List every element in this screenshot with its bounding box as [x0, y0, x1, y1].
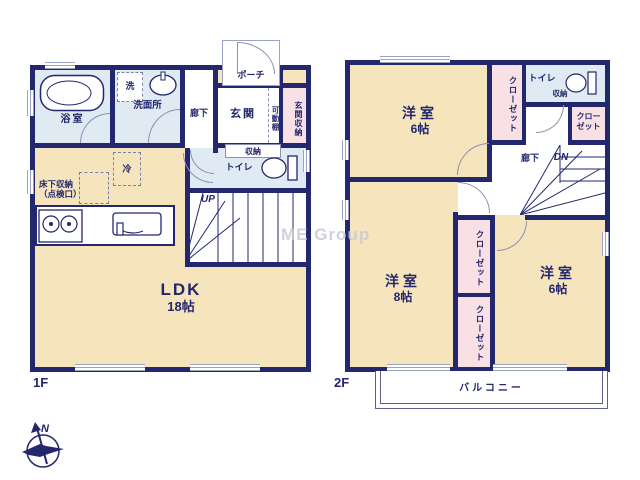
window [303, 150, 310, 172]
window [27, 90, 34, 116]
wall [35, 143, 185, 148]
floorplan-2f: 洋室 6帖 クローゼット トイレ 収納 クローゼット 廊下 DN 洋室 8帖 ク… [345, 60, 610, 372]
wall [453, 215, 495, 220]
washer-label: 洗 [117, 81, 143, 91]
floorplan-1f: 洗 冷 浴室 洗面所 廊下 玄関 可動棚 玄関収納 収納 トイレ UP [30, 65, 311, 372]
entrance-label: 玄関 [218, 108, 268, 121]
entrance-storage-label: 玄関収納 [286, 92, 303, 146]
floor1-name: 1F [33, 375, 48, 390]
sink-icon [107, 209, 169, 243]
closet-mid-label: クローゼット [464, 227, 484, 289]
balcony-label: バルコニー [376, 383, 607, 395]
bedroom-left-size: 8帖 [363, 291, 443, 305]
ldk-size: 18帖 [141, 300, 221, 315]
bedroom-right-size: 6帖 [516, 283, 600, 297]
door-arc [457, 143, 489, 175]
closet-top-label: クローゼット [497, 73, 517, 135]
window [387, 364, 450, 371]
compass-n-letter: N [41, 423, 50, 435]
window [493, 364, 567, 371]
hallway-label: 廊下 [184, 108, 214, 118]
wall [185, 262, 306, 267]
ldk-label: LDK 18帖 [141, 280, 221, 314]
washbasin-icon [147, 70, 179, 98]
underfloor-line2: （点検口） [39, 189, 82, 199]
bedroom-top-name: 洋室 [370, 105, 470, 121]
compass-north-icon: N [14, 418, 72, 476]
watermark: ME Group [281, 225, 370, 245]
bath-label: 浴室 [35, 114, 110, 126]
movable-shelf-label: 可動棚 [268, 94, 279, 144]
stove-icon [38, 209, 83, 243]
underfloor-line1: 床下収納 [39, 179, 73, 189]
window [342, 140, 349, 160]
door-arc [497, 221, 527, 251]
closet-small-label: クローゼット [573, 112, 604, 131]
window [45, 62, 75, 69]
underfloor-label: 床下収納 （点検口） [36, 180, 82, 200]
hallway-2f-label: 廊下 [514, 153, 546, 163]
bedroom-right-name: 洋室 [516, 265, 600, 281]
window [602, 232, 609, 256]
window [75, 364, 145, 371]
floor2-name: 2F [334, 375, 349, 390]
bedroom-right-label: 洋室 6帖 [516, 265, 600, 297]
wall [350, 177, 492, 182]
bedroom-top-label: 洋室 6帖 [370, 105, 470, 137]
window [342, 200, 349, 220]
storage-2f-label: 収納 [546, 90, 574, 99]
bathtub-icon [39, 74, 105, 112]
ldk-name: LDK [141, 280, 221, 300]
stairs-down-label: DN [548, 152, 574, 164]
porch: ポーチ [222, 40, 280, 86]
underfloor-storage-hatch [79, 172, 109, 204]
wall [525, 215, 605, 220]
porch-label: ポーチ [223, 70, 279, 80]
toilet-shelf-label: 収納 [225, 147, 281, 156]
stairs-up-label: UP [193, 194, 223, 206]
bedroom-left-name: 洋室 [363, 273, 443, 289]
toilet-label: トイレ [213, 162, 265, 172]
bedroom-left-label: 洋室 8帖 [363, 273, 443, 305]
window [190, 364, 260, 371]
wall [458, 293, 495, 297]
closet-bottom-label: クローゼット [464, 302, 484, 364]
toilet-2f-label: トイレ [524, 73, 560, 83]
washroom-label: 洗面所 [115, 101, 180, 112]
fridge-label: 冷 [113, 164, 141, 174]
window [380, 56, 450, 63]
bedroom-top-size: 6帖 [370, 123, 470, 137]
wall [453, 212, 458, 367]
toilet-icon [259, 152, 301, 184]
window [27, 170, 34, 194]
balcony: バルコニー [375, 371, 608, 409]
